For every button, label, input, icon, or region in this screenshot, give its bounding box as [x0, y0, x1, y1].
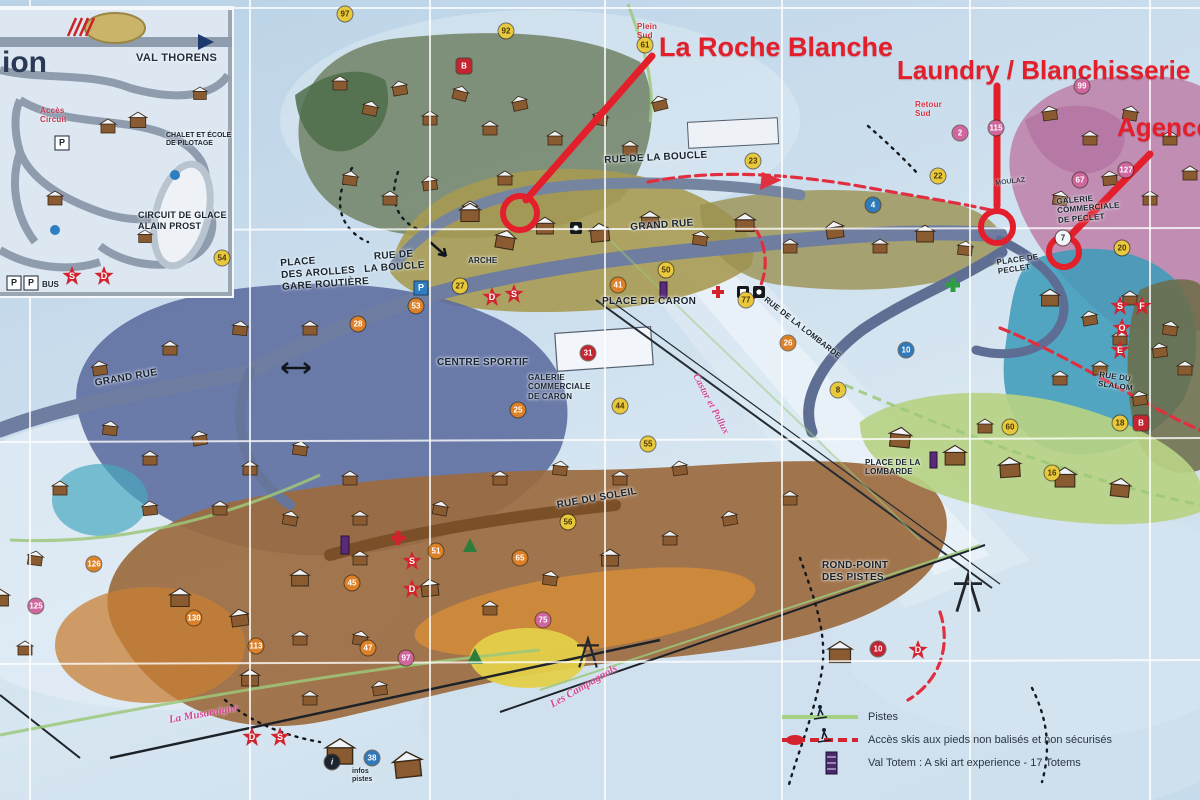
ski-school-star-mark: D [908, 640, 928, 660]
ski-school-star-mark: F [1132, 296, 1152, 316]
ski-school-star-mark: D [482, 287, 502, 307]
ski-school-star-mark: E [1110, 340, 1130, 360]
ski-school-star-mark: S [270, 727, 290, 747]
ski-school-star-mark: O [1112, 318, 1132, 338]
ski-school-star-mark: S [504, 284, 524, 304]
star-layer: SDDSSDSFOEDDS [0, 0, 1200, 800]
ski-school-star-mark: S [1110, 296, 1130, 316]
ski-school-star-mark: D [402, 579, 422, 599]
ski-school-star-mark: S [402, 551, 422, 571]
resort-map: La Roche Blanche Laundry / Blanchisserie… [0, 0, 1200, 800]
ski-school-star-mark: D [94, 266, 114, 286]
ski-school-star-mark: D [242, 727, 262, 747]
ski-school-star-mark: S [62, 266, 82, 286]
